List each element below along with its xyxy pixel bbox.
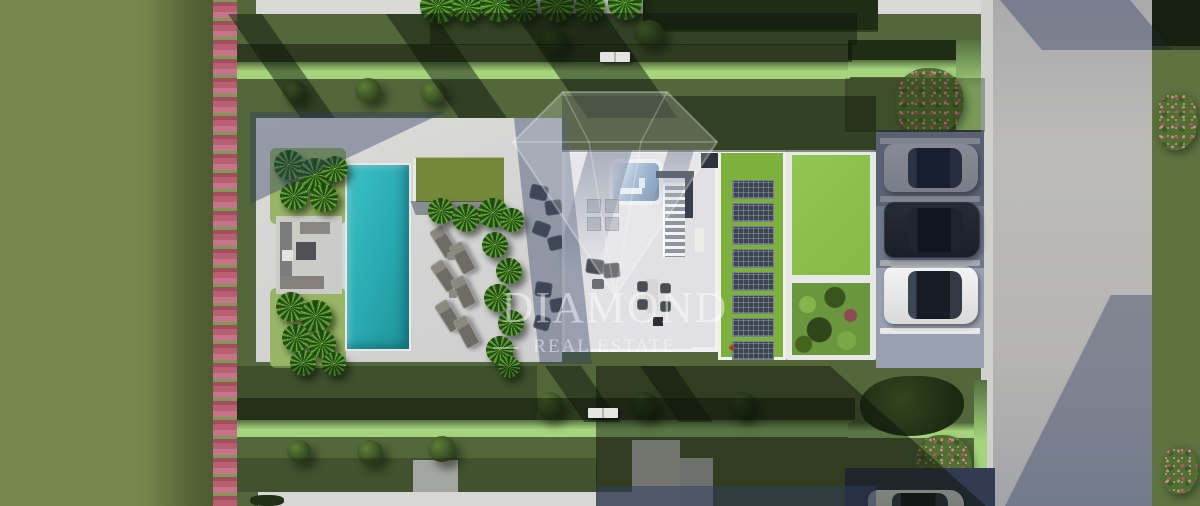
right-grass-strip [1152,0,1200,506]
coffee-table [296,242,316,260]
palm-bush [322,156,348,182]
palm-bush [280,182,308,210]
car-glass-roof [909,208,964,252]
car-glass-roof [908,271,963,319]
top-dark-hedge [643,0,878,32]
lawn-path-frame [786,150,876,360]
garden-bush [287,440,311,462]
garden-bush [630,392,658,418]
parked-car-white [884,266,978,324]
watermark-red-mark: ◆ [729,342,738,352]
bottom-path-patch [680,458,713,506]
car-glass-roof [892,493,948,506]
palm-bush [452,204,480,232]
palm-bush [322,352,346,376]
garden-bed [792,283,870,355]
lawn-square [792,155,870,275]
garden-bush [634,20,664,46]
garden-bench [588,408,618,418]
car-glass-roof [908,148,963,187]
garden-bush [538,28,568,54]
parked-car-black [884,202,980,258]
pool-side-table [447,252,455,260]
garden-bush [428,436,456,462]
small-conifers [250,495,284,506]
pool-side-table [449,290,457,298]
garden-bush [357,440,383,464]
parked-car-partial [868,490,964,506]
swimming-pool [345,163,411,351]
palm-bush [290,350,316,376]
bottom-path-patch [632,440,680,506]
top-boundary-hedge [237,62,850,79]
top-right-corner-hedge [1152,0,1200,46]
diamond-logo-icon [485,78,745,308]
tagline-right-rule [691,347,717,349]
watermark-tagline: REAL ESTATE [533,336,676,357]
garden-bush [282,80,306,102]
sofa-cushions [300,222,330,234]
garden-bush [728,392,756,418]
parked-car-white [884,144,978,192]
field-edge-shade [150,0,216,506]
palm-bush [282,324,310,352]
sofa-cushions [280,276,324,289]
tagline-left-rule [493,347,519,349]
aerial-render-scene: DIAMOND REAL ESTATE ◆ [0,0,1200,506]
palm-bush [310,184,338,212]
parking-top-dark-hedge [848,40,963,62]
garden-bush [535,392,563,418]
garden-bush [420,80,446,104]
side-stool [282,250,293,261]
garden-bench [600,52,630,62]
pink-flower-hedge [213,0,237,506]
watermark: DIAMOND REAL ESTATE ◆ [480,78,750,374]
road [993,0,1152,506]
bottom-path-patch [413,460,458,506]
parking-area [876,132,984,368]
parking-divider [880,328,980,334]
palm-bush [428,198,454,224]
watermark-brand: DIAMOND [480,282,750,333]
garden-bush [355,78,381,102]
bottom-boundary-hedge [237,420,852,437]
lounge-seating-area [276,216,342,294]
watermark-tagline-row: REAL ESTATE ◆ [480,336,750,358]
